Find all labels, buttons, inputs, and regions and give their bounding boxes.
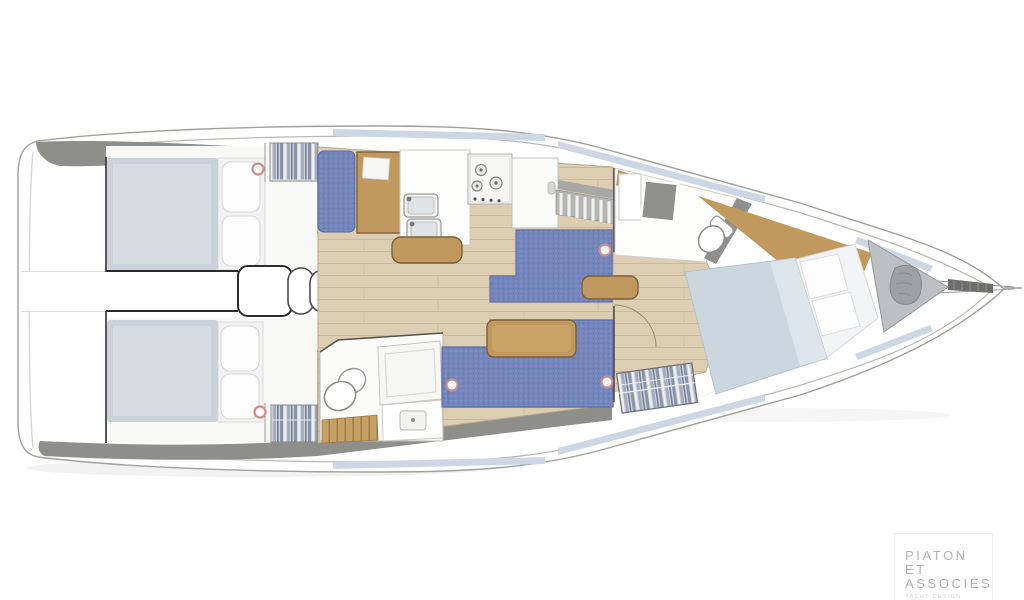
galley-handrail bbox=[392, 237, 462, 263]
round-cushion bbox=[600, 245, 611, 256]
aft-head bbox=[319, 333, 443, 443]
chart-paper bbox=[362, 157, 389, 180]
teak-grate bbox=[322, 415, 378, 443]
porthole bbox=[253, 164, 264, 175]
companionway-passage bbox=[20, 271, 238, 311]
aft-cabin-port-mattress-highlight bbox=[113, 164, 211, 264]
pillow bbox=[222, 216, 260, 266]
logo-line: ET bbox=[905, 563, 1015, 577]
aft-cabin-starboard bbox=[106, 318, 318, 442]
logo-line: PIATON bbox=[905, 549, 1015, 563]
vanity-cabinet bbox=[382, 400, 443, 441]
pillow bbox=[221, 374, 259, 419]
round-cushion bbox=[602, 377, 613, 388]
galley-fridge bbox=[512, 158, 558, 228]
anchor-bag bbox=[890, 265, 921, 304]
studio-logo: PIATON ET ASSOCIÉS YACHT DESIGN bbox=[905, 549, 1015, 600]
nav-seat bbox=[318, 151, 355, 232]
aft-cabin-starboard-mattress-highlight bbox=[113, 326, 211, 416]
aft-cabin-starboard-wardrobe bbox=[271, 405, 317, 442]
logo-tagline: YACHT DESIGN bbox=[905, 594, 1015, 600]
round-cushion bbox=[447, 380, 458, 391]
salon-table bbox=[487, 320, 576, 357]
logo-line: ASSOCIÉS bbox=[905, 577, 1015, 591]
shower-tray bbox=[378, 341, 442, 405]
galley-sink bbox=[404, 194, 438, 217]
boat-floor-plan-page: PIATON ET ASSOCIÉS YACHT DESIGN bbox=[0, 0, 1024, 600]
boat-floor-plan bbox=[0, 0, 1024, 600]
aft-cabin-port bbox=[106, 143, 318, 270]
head-vanity-sink bbox=[641, 180, 678, 221]
salon-side-shelf bbox=[582, 276, 638, 299]
galley-stove bbox=[468, 154, 512, 204]
head-cabinet bbox=[619, 174, 641, 220]
porthole bbox=[255, 407, 266, 418]
pillow bbox=[221, 326, 259, 371]
chart-table bbox=[357, 152, 403, 233]
aft-cabin-port-wardrobe bbox=[270, 143, 318, 181]
